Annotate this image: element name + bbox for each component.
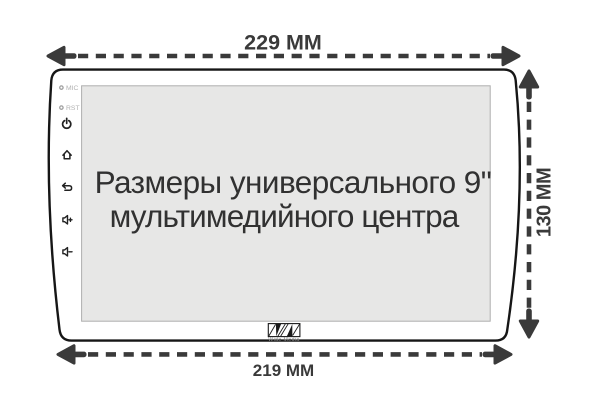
- svg-text:Wide Media: Wide Media: [268, 337, 299, 343]
- svg-text:мультимедийного центра: мультимедийного центра: [110, 198, 460, 234]
- svg-text:229 ММ: 229 ММ: [244, 31, 322, 55]
- svg-text:130 ММ: 130 ММ: [534, 168, 556, 237]
- svg-text:219 ММ: 219 ММ: [253, 361, 314, 380]
- svg-text:RST: RST: [66, 105, 80, 112]
- svg-text:Размеры универсального 9": Размеры универсального 9": [95, 164, 492, 200]
- svg-text:MIC: MIC: [66, 85, 79, 92]
